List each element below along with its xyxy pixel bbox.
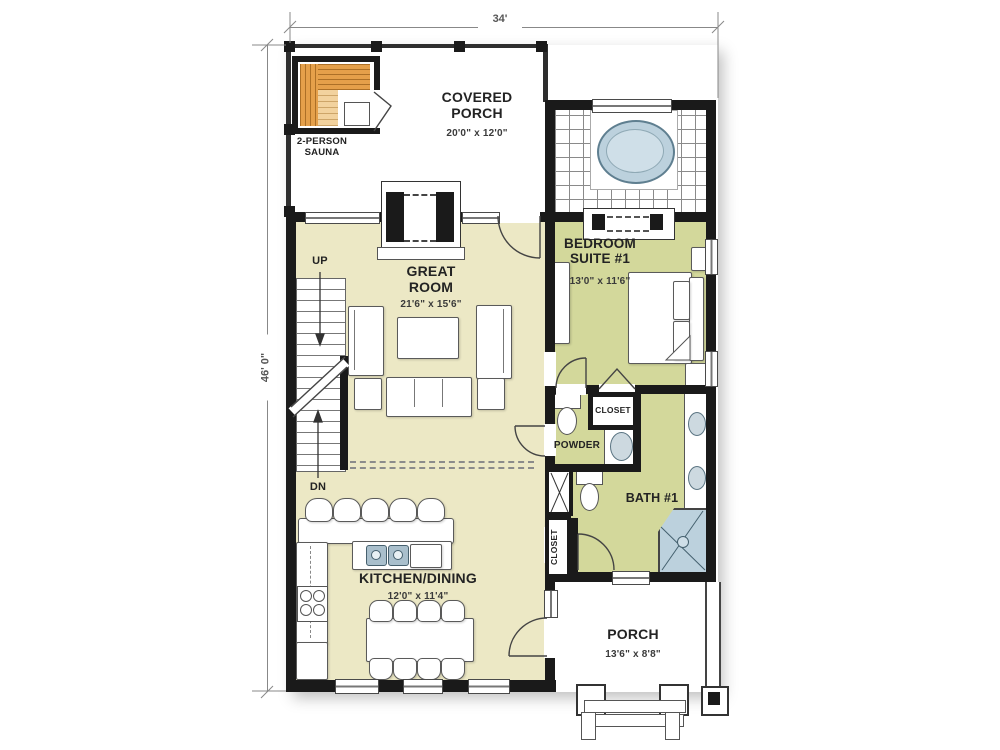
burner (300, 590, 312, 602)
vanity-sink (688, 412, 706, 436)
stair-wall (340, 356, 348, 470)
sink-basin (393, 550, 403, 560)
kitchen-window (335, 679, 379, 694)
coffee-table (397, 317, 459, 359)
deck-window (592, 99, 672, 113)
porch-wall (286, 44, 548, 48)
porch-side-window (544, 590, 558, 618)
wall-deck-left (545, 100, 555, 222)
bedroom-window (705, 239, 718, 275)
dining-chair (393, 658, 417, 680)
sliding-door-jamb (650, 214, 663, 230)
sauna-bench (318, 64, 370, 90)
dimension-height-label: 46' 0" (260, 335, 275, 401)
stairs-down-label: DN (305, 481, 331, 494)
bath-label: BATH #1 (620, 491, 684, 505)
porch-post (454, 41, 465, 52)
great-room-window (305, 212, 380, 224)
wall-closet-bath (570, 518, 578, 578)
room-divider-dashed (350, 461, 534, 463)
dining-chair (441, 658, 465, 680)
great-room-size: 21'6" x 15'6" (376, 299, 486, 310)
covered-porch-size: 20'0" x 12'0" (422, 128, 532, 139)
dining-chair (441, 600, 465, 622)
pillow (673, 321, 690, 360)
porch-post (371, 41, 382, 52)
kitchen-window (403, 679, 443, 694)
porch-post (536, 41, 547, 52)
sauna-heater (344, 102, 370, 126)
wall-right (706, 100, 716, 582)
stairs-up-label: UP (308, 255, 332, 268)
chase-shaft (545, 468, 573, 516)
bedroom-left-opening (544, 352, 556, 386)
dishwasher (410, 544, 442, 568)
room-divider-dashed (350, 467, 534, 469)
sofa-cushion-line (442, 379, 443, 407)
loveseat-right-back (503, 309, 504, 373)
porch-post (284, 41, 295, 52)
porch-door-opening (544, 616, 556, 658)
dining-chair (417, 600, 441, 622)
dimension-width-label: 34' (478, 13, 522, 28)
bar-stool (333, 498, 361, 522)
kitchen-label: KITCHEN/DINING (343, 571, 493, 587)
kitchen-cabinet (296, 642, 328, 680)
porch-railing-right (705, 582, 721, 688)
sliding-door-jamb (592, 214, 605, 230)
fireplace-hearth (377, 247, 465, 260)
fireplace-block (386, 192, 404, 242)
bedroom-door-opening (556, 384, 586, 395)
floor-plan: 34' 46' 0" COVERED PORCH 20'0" x 12'0" 2… (0, 0, 1000, 750)
fireplace-block (436, 192, 454, 242)
sofa-cushion-line (414, 379, 415, 407)
dining-chair (393, 600, 417, 622)
burner (300, 604, 312, 616)
vanity-sink (688, 466, 706, 490)
sofa (386, 377, 472, 417)
bar-stool (417, 498, 445, 522)
bath-toilet-bowl (580, 483, 599, 511)
powder-label: POWDER (551, 440, 603, 451)
porch-size: 13'6" x 8'8" (594, 649, 672, 660)
bar-stool (361, 498, 389, 522)
great-room-window (462, 212, 500, 224)
dining-table (366, 618, 474, 662)
headboard (689, 277, 704, 361)
bedroom-closet-label: CLOSET (590, 406, 636, 416)
sink-basin (371, 550, 381, 560)
fireplace-firebox (404, 194, 436, 242)
sliding-door-dashes (607, 216, 649, 232)
burner (313, 604, 325, 616)
bar-stool (305, 498, 333, 522)
bar-stool (389, 498, 417, 522)
powder-sink (610, 432, 633, 461)
loveseat-right (476, 305, 512, 379)
sauna-door-opening (372, 90, 382, 128)
entry-door-opening (496, 211, 540, 223)
porch-label: PORCH (598, 627, 668, 643)
hall-closet-label: CLOSET (550, 521, 566, 573)
kitchen-size: 12'0" x 11'4" (366, 591, 470, 602)
porch-wall (543, 44, 548, 102)
powder-toilet-bowl (557, 407, 577, 435)
porch-pillar-core (708, 692, 720, 705)
dining-chair (417, 658, 441, 680)
great-room-label: GREAT ROOM (394, 264, 468, 296)
porch-column-leg (665, 712, 680, 740)
pillow (673, 281, 690, 320)
hot-tub-inner (606, 129, 664, 173)
wall-left (286, 212, 296, 692)
dining-chair (369, 658, 393, 680)
sauna-label: 2-PERSON SAUNA (280, 137, 364, 159)
kitchen-window (468, 679, 510, 694)
loveseat-left-back (354, 310, 355, 370)
covered-porch-label: COVERED PORCH (430, 90, 524, 122)
burner (313, 590, 325, 602)
sauna-bench-low (318, 90, 338, 126)
side-table-right (477, 378, 505, 410)
bedroom-label: BEDROOM SUITE #1 (554, 236, 646, 267)
sauna-bench (300, 64, 318, 126)
side-table-left (354, 378, 382, 410)
bath-window (612, 571, 650, 585)
dining-chair (369, 600, 393, 622)
porch-column-leg (581, 712, 596, 740)
staircase (296, 278, 346, 472)
bedroom-size: 13'0" x 11'6" (550, 276, 650, 287)
bedroom-window (705, 351, 718, 387)
